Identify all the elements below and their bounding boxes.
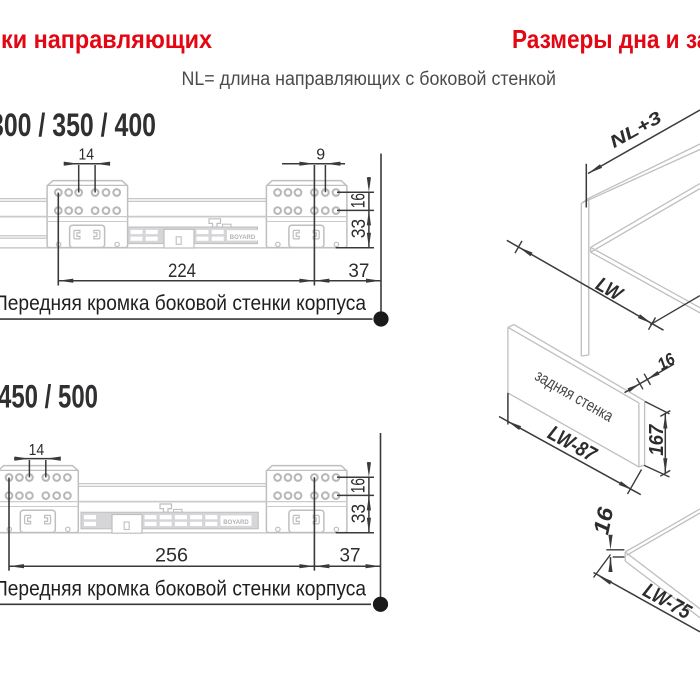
svg-text:LW-75: LW-75 xyxy=(639,579,695,624)
svg-text:33: 33 xyxy=(349,219,370,238)
svg-text:BOYARD: BOYARD xyxy=(223,520,249,526)
svg-text:450 / 500: 450 / 500 xyxy=(0,379,98,415)
svg-text:LW-87: LW-87 xyxy=(544,422,601,468)
svg-text:167: 167 xyxy=(646,424,668,456)
svg-text:задняя стенка: задняя стенка xyxy=(532,367,617,426)
svg-text:ки направляющих: ки направляющих xyxy=(1,24,212,54)
svg-text:9: 9 xyxy=(316,147,325,164)
svg-text:NL+3: NL+3 xyxy=(606,107,665,152)
svg-text:BOYARD: BOYARD xyxy=(230,235,256,241)
svg-text:256: 256 xyxy=(155,546,188,567)
svg-text:LW: LW xyxy=(592,273,628,306)
svg-text:14: 14 xyxy=(29,442,45,459)
svg-text:Передняя кромка боковой стенки: Передняя кромка боковой стенки корпуса xyxy=(0,578,366,601)
svg-text:37: 37 xyxy=(340,546,361,567)
svg-text:16: 16 xyxy=(654,349,679,374)
svg-text:Размеры дна и задней стенки: Размеры дна и задней стенки xyxy=(512,24,700,54)
svg-text:224: 224 xyxy=(168,261,196,282)
svg-text:Передняя кромка боковой стенки: Передняя кромка боковой стенки корпуса xyxy=(0,292,366,315)
svg-text:NL= длина направляющих с боков: NL= длина направляющих с боковой стенкой xyxy=(182,69,557,90)
svg-text:16: 16 xyxy=(348,478,369,493)
svg-text:33: 33 xyxy=(349,504,370,523)
svg-text:300 / 350 / 400: 300 / 350 / 400 xyxy=(0,107,156,143)
svg-text:16: 16 xyxy=(588,504,618,536)
svg-text:14: 14 xyxy=(79,147,95,164)
svg-text:16: 16 xyxy=(348,193,369,208)
